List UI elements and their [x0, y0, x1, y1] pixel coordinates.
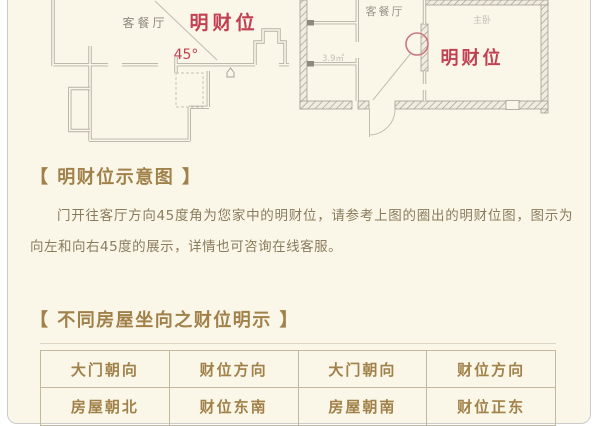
- door-marker-icon: [227, 68, 234, 77]
- left-plan-wealth-label: 明财位: [189, 11, 258, 34]
- right-plan-bottom-wall-c: [395, 101, 548, 109]
- col-header-wealth-direction-1: 财位方向: [169, 351, 298, 388]
- right-plan-right-wall: [541, 0, 548, 113]
- cell-wealth-direction-1: 财位东南: [169, 388, 298, 426]
- right-wing-walls: [208, 30, 289, 65]
- window-gap: [506, 101, 519, 110]
- angle-line: [373, 53, 411, 100]
- left-plan-angle-label: 45°: [174, 47, 199, 63]
- bay-window: [70, 89, 90, 131]
- table-header-row: 大门朝向 财位方向 大门朝向 财位方向: [41, 351, 556, 388]
- right-plan-bottom-wall-b: [358, 101, 369, 109]
- left-plan-room-label: 客餐厅: [122, 15, 167, 30]
- right-plan-bedroom-label: 主卧: [473, 14, 491, 26]
- cell-wealth-direction-2: 财位正东: [427, 388, 556, 426]
- right-plan-wealth-label: 明财位: [441, 47, 504, 69]
- wall-tick: [307, 61, 314, 67]
- cell-door-orientation-1: 房屋朝北: [41, 388, 170, 426]
- wealth-direction-table: 大门朝向 财位方向 大门朝向 财位方向 房屋朝北 财位东南 房屋朝南 财位正东: [40, 350, 556, 426]
- floorplan-left: 客餐厅 明财位 45°: [45, 0, 290, 152]
- diagram-section-heading: 【 明财位示意图 】: [30, 163, 202, 189]
- dashed-shaft: [176, 73, 203, 107]
- divider: [40, 343, 556, 344]
- col-header-door-orientation-2: 大门朝向: [298, 351, 427, 388]
- table-section-heading: 【 不同房屋坐向之财位明示 】: [30, 306, 299, 332]
- right-plan-bottom-wall-a: [300, 101, 352, 109]
- diagram-section-paragraph: 门开往客厅方向45度角为您家中的明财位，请参考上图的圈出的明财位图，图示为向左和…: [30, 201, 573, 263]
- col-header-wealth-direction-2: 财位方向: [427, 351, 556, 388]
- cell-door-orientation-2: 房屋朝南: [298, 388, 427, 426]
- col-header-door-orientation-1: 大门朝向: [41, 351, 170, 388]
- floorplan-right: 客餐厅 明财位 主卧 3.9㎡: [296, 0, 551, 148]
- right-plan-area-label: 3.9㎡: [322, 54, 345, 64]
- right-plan-top-wall: [424, 0, 548, 5]
- right-plan-left-wall: [300, 0, 307, 109]
- door-swing-arc: [370, 109, 396, 135]
- right-plan-room-label: 客餐厅: [366, 4, 405, 18]
- wall-tick: [307, 20, 314, 26]
- table-row: 房屋朝北 财位东南 房屋朝南 财位正东: [41, 388, 556, 426]
